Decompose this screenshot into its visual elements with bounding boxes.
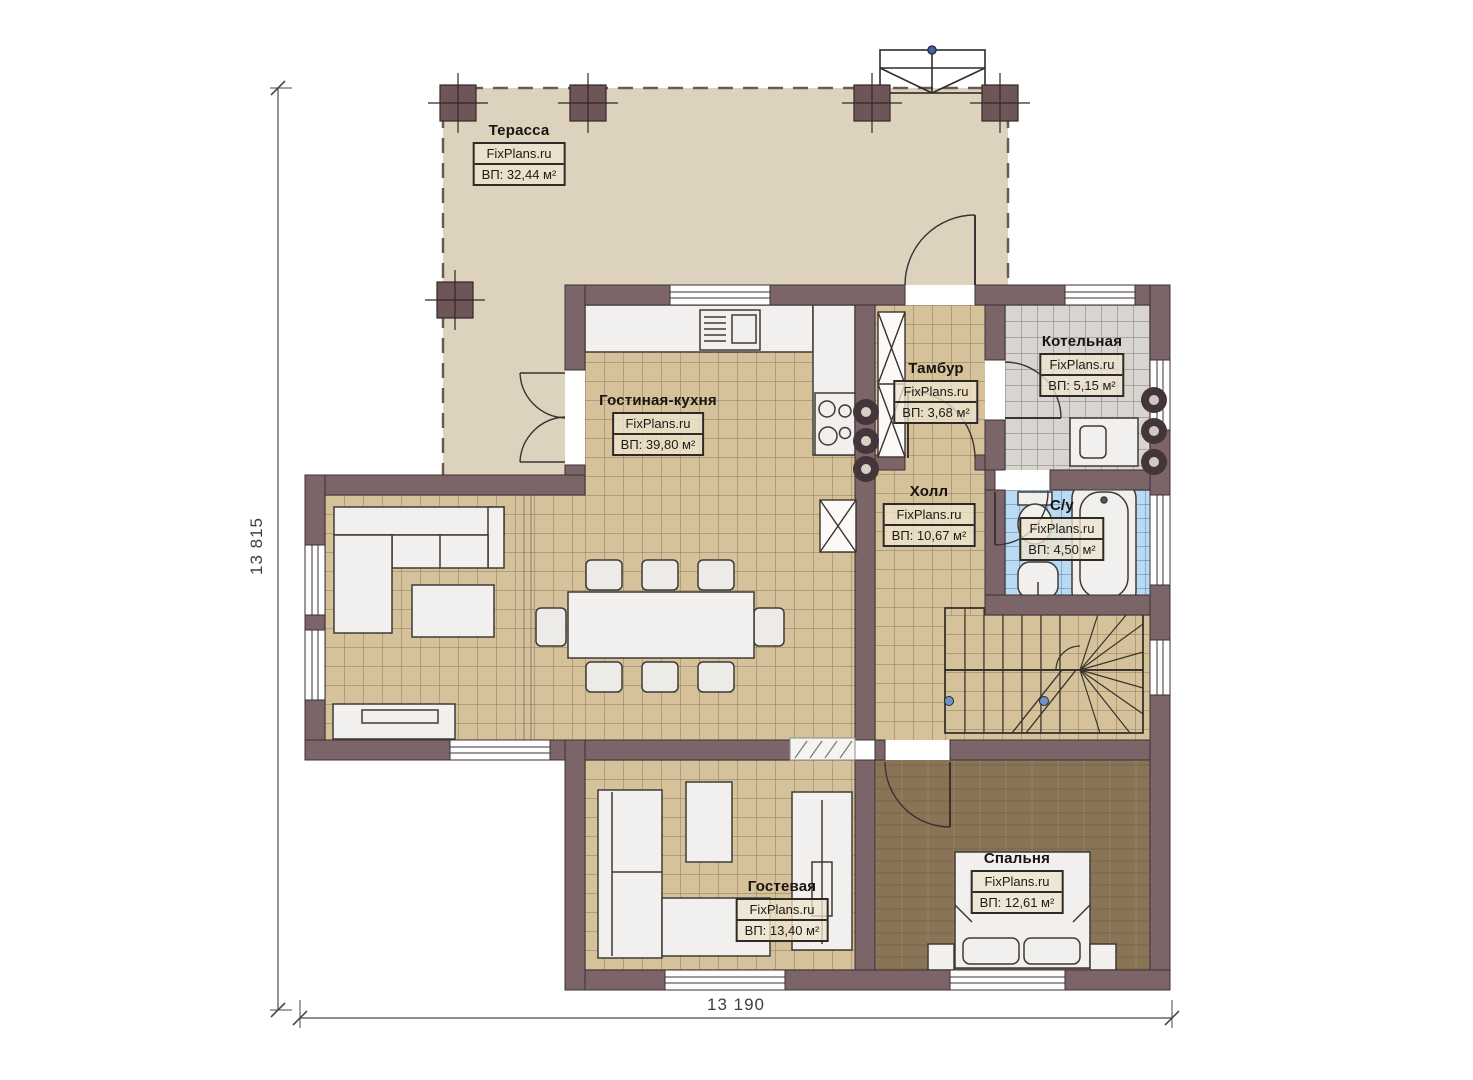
room-label-bathroom: С/у FixPlans.ru ВП: 4,50 м² bbox=[1019, 497, 1104, 561]
window-bay-left-2 bbox=[305, 630, 325, 700]
guest-desk bbox=[686, 782, 732, 862]
room-title: С/у bbox=[1019, 497, 1104, 514]
room-watermark-box: FixPlans.ru ВП: 5,15 м² bbox=[1039, 353, 1124, 397]
room-label-boiler: Котельная FixPlans.ru ВП: 5,15 м² bbox=[1039, 333, 1124, 397]
bedroom-door bbox=[885, 762, 950, 827]
room-label-guest: Гостевая FixPlans.ru ВП: 13,40 м² bbox=[736, 878, 829, 942]
room-label-tambour: Тамбур FixPlans.ru ВП: 3,68 м² bbox=[893, 360, 978, 424]
terrace-double-door bbox=[520, 373, 565, 462]
room-watermark: FixPlans.ru bbox=[895, 382, 976, 401]
room-area: ВП: 5,15 м² bbox=[1041, 374, 1122, 395]
stair-post-dot bbox=[1040, 697, 1049, 706]
room-watermark-box: FixPlans.ru ВП: 12,61 м² bbox=[971, 870, 1064, 914]
stair-post-dot bbox=[945, 697, 954, 706]
entrance-door bbox=[905, 215, 975, 285]
room-area: ВП: 10,67 м² bbox=[885, 524, 974, 545]
room-watermark: FixPlans.ru bbox=[1041, 355, 1122, 374]
window-kitchen-top bbox=[670, 285, 770, 305]
room-title: Гостиная-кухня bbox=[599, 392, 717, 409]
window-bathroom-right bbox=[1150, 495, 1170, 585]
room-area: ВП: 12,61 м² bbox=[973, 891, 1062, 912]
room-watermark-box: FixPlans.ru ВП: 32,44 м² bbox=[473, 142, 566, 186]
kitchen-stove bbox=[815, 393, 855, 455]
room-label-living-kitchen: Гостиная-кухня FixPlans.ru ВП: 39,80 м² bbox=[599, 392, 717, 456]
window-bedroom-bottom bbox=[950, 970, 1065, 990]
room-title: Котельная bbox=[1039, 333, 1124, 350]
room-watermark: FixPlans.ru bbox=[475, 144, 564, 163]
tv-stand bbox=[333, 704, 455, 739]
staircase bbox=[945, 608, 1144, 733]
floor-plan-canvas: Терасса FixPlans.ru ВП: 32,44 м² Гостина… bbox=[0, 0, 1473, 1080]
window-bay-left-1 bbox=[305, 545, 325, 615]
room-title: Холл bbox=[883, 483, 976, 500]
room-area: ВП: 3,68 м² bbox=[895, 401, 976, 422]
room-watermark: FixPlans.ru bbox=[738, 900, 827, 919]
room-area: ВП: 39,80 м² bbox=[614, 433, 703, 454]
vent-shaft-kitchen bbox=[820, 500, 856, 552]
room-label-terrace: Терасса FixPlans.ru ВП: 32,44 м² bbox=[473, 122, 566, 186]
room-watermark-box: FixPlans.ru ВП: 13,40 м² bbox=[736, 898, 829, 942]
nightstand-left bbox=[928, 944, 954, 970]
beam-lines bbox=[524, 495, 531, 740]
room-watermark-box: FixPlans.ru ВП: 3,68 м² bbox=[893, 380, 978, 424]
room-area: ВП: 32,44 м² bbox=[475, 163, 564, 184]
dimension-height-label: 13 815 bbox=[247, 517, 267, 575]
coffee-table bbox=[412, 585, 494, 637]
room-watermark: FixPlans.ru bbox=[1021, 519, 1102, 538]
kitchen-sink bbox=[700, 310, 760, 350]
window-bay-bottom bbox=[450, 740, 550, 760]
boiler-unit bbox=[1070, 418, 1138, 466]
room-label-bedroom: Спальня FixPlans.ru ВП: 12,61 м² bbox=[971, 850, 1064, 914]
pergola-node-dot bbox=[928, 46, 936, 54]
room-watermark: FixPlans.ru bbox=[614, 414, 703, 433]
room-title: Терасса bbox=[473, 122, 566, 139]
dining-table bbox=[568, 592, 754, 658]
room-title: Спальня bbox=[971, 850, 1064, 867]
cased-opening bbox=[790, 738, 855, 760]
room-area: ВП: 13,40 м² bbox=[738, 919, 827, 940]
pergola-symbol bbox=[880, 46, 985, 93]
room-title: Гостевая bbox=[736, 878, 829, 895]
room-title: Тамбур bbox=[893, 360, 978, 377]
window-guest-bottom bbox=[665, 970, 785, 990]
room-watermark-box: FixPlans.ru ВП: 39,80 м² bbox=[612, 412, 705, 456]
window-stairs-right bbox=[1150, 640, 1170, 695]
dining-set bbox=[536, 560, 784, 692]
room-watermark-box: FixPlans.ru ВП: 10,67 м² bbox=[883, 503, 976, 547]
bathroom-sink bbox=[1018, 562, 1058, 598]
room-area: ВП: 4,50 м² bbox=[1021, 538, 1102, 559]
kitchen-counter-top bbox=[585, 305, 813, 352]
dimension-width-label: 13 190 bbox=[707, 995, 765, 1015]
nightstand-right bbox=[1090, 944, 1116, 970]
room-watermark: FixPlans.ru bbox=[973, 872, 1062, 891]
room-watermark-box: FixPlans.ru ВП: 4,50 м² bbox=[1019, 517, 1104, 561]
room-label-hall: Холл FixPlans.ru ВП: 10,67 м² bbox=[883, 483, 976, 547]
room-watermark: FixPlans.ru bbox=[885, 505, 974, 524]
window-boiler-top bbox=[1065, 285, 1135, 305]
